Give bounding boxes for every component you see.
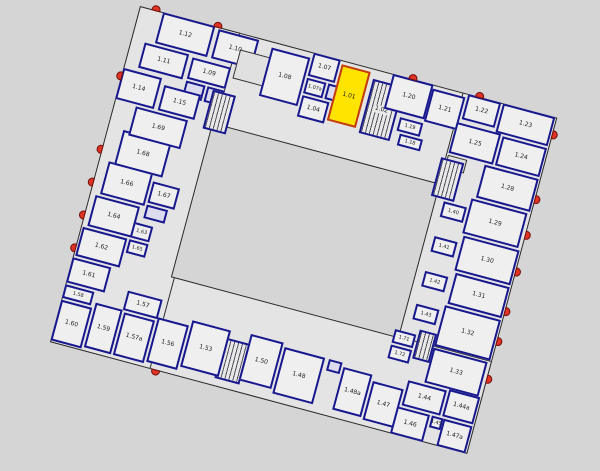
room-label: 1.66 bbox=[119, 179, 133, 188]
room-label: 1.48 bbox=[291, 371, 305, 380]
room-label: 1.19 bbox=[404, 123, 416, 131]
room-label: 1.09 bbox=[202, 69, 216, 78]
room-label: 1.21 bbox=[437, 105, 451, 114]
room-label: 1.65 bbox=[131, 245, 143, 253]
room-label: 1.29 bbox=[488, 219, 502, 228]
room-label: 1.62 bbox=[94, 243, 108, 252]
room-label: 1.47 bbox=[376, 400, 390, 409]
room-label: 1.23 bbox=[518, 120, 532, 129]
room-label: 1.67 bbox=[156, 191, 170, 200]
room-label: 1.20 bbox=[401, 92, 415, 101]
room-label: 1.15 bbox=[172, 98, 186, 107]
room-label: 1.68 bbox=[136, 149, 150, 158]
room-label: 1.42 bbox=[429, 278, 441, 286]
room-label: 1.44 bbox=[417, 393, 431, 402]
room-label: 1.22 bbox=[474, 106, 488, 115]
room-label: 1.71 bbox=[398, 335, 410, 343]
room-label: 1.25 bbox=[468, 139, 482, 148]
floor-plan: 1.121.101.111.091.141.151.081.071.07a1.0… bbox=[50, 6, 557, 454]
room-label: 1.40 bbox=[447, 208, 459, 216]
room-label: 1.50 bbox=[254, 357, 268, 366]
room-label: 1.08 bbox=[277, 72, 291, 81]
room-label: 1.30 bbox=[480, 256, 494, 265]
room-label: 1.24 bbox=[514, 152, 528, 161]
room-label: 1.69 bbox=[151, 123, 165, 132]
room-label: 1.07a bbox=[307, 84, 322, 93]
room-label: 1.11 bbox=[156, 56, 170, 65]
door-marker bbox=[495, 337, 503, 347]
door-marker bbox=[524, 231, 532, 241]
room-label: 1.53 bbox=[198, 344, 212, 353]
room-label: 1.43 bbox=[420, 311, 432, 319]
door-marker bbox=[485, 374, 493, 384]
door-marker bbox=[150, 368, 160, 376]
room-label: 1.14 bbox=[131, 84, 145, 93]
room-label: 1.47a bbox=[445, 431, 463, 441]
room-label: 1.32 bbox=[460, 328, 474, 337]
room-label: 1.64 bbox=[106, 212, 120, 221]
room-label: 1.46 bbox=[403, 419, 417, 428]
room-label: 1.48a bbox=[343, 387, 361, 397]
room-label: 1.28 bbox=[500, 184, 514, 193]
room-label: 1.59 bbox=[96, 324, 110, 333]
room-label: 1.57a bbox=[125, 333, 143, 343]
room-label: 1.63 bbox=[135, 228, 147, 236]
room-label: 1.33 bbox=[449, 368, 463, 377]
room-label: 1.04 bbox=[306, 105, 320, 114]
door-marker bbox=[514, 267, 522, 277]
room-label: 1.31 bbox=[471, 291, 485, 300]
room-label: 1.60 bbox=[64, 319, 78, 328]
floor-plan-canvas: 1.121.101.111.091.141.151.081.071.07a1.0… bbox=[0, 0, 600, 471]
room-label: 1.44a bbox=[452, 402, 470, 412]
room-label: 1.41 bbox=[438, 243, 450, 251]
room-label: 1.61 bbox=[81, 270, 95, 279]
door-marker bbox=[503, 307, 511, 317]
room-label: 1.57 bbox=[135, 300, 149, 309]
door-marker bbox=[533, 195, 541, 205]
room-label: 1.01 bbox=[342, 91, 356, 100]
room-label: 1.72 bbox=[394, 350, 406, 358]
room-label: 1.07 bbox=[317, 63, 331, 72]
door-marker bbox=[551, 130, 559, 140]
room-label: 1.12 bbox=[178, 30, 192, 39]
room-label: 1.58 bbox=[72, 291, 84, 299]
room-label: 1.56 bbox=[160, 339, 174, 348]
room-label: 1.18 bbox=[404, 139, 416, 147]
